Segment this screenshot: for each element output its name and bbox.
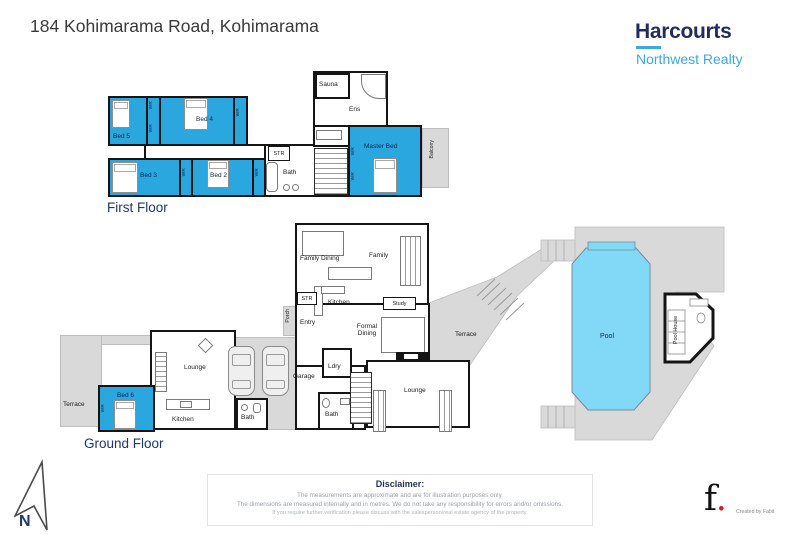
disclaimer-title: Disclaimer: <box>208 479 592 489</box>
fabit-logo: f. Created by Fabit <box>704 482 796 528</box>
formal-dining-table-icon <box>381 317 425 353</box>
pool-step <box>588 242 635 250</box>
formal-dining-label: Formal Dining <box>352 323 382 338</box>
bathtub-icon <box>266 162 278 192</box>
wardrobe-label: WR <box>236 108 242 116</box>
bed4-label: Bed 4 <box>196 116 213 123</box>
wardrobe-label: WR <box>101 404 107 412</box>
dining-table-icon <box>302 231 344 256</box>
sauna-label: Sauna <box>319 81 338 88</box>
storage-label: STR <box>302 296 313 302</box>
porch-label: Porch <box>286 309 292 323</box>
toilet-icon <box>697 313 705 323</box>
toilet-icon <box>253 403 261 413</box>
bed-icon <box>184 98 208 130</box>
shelf-icon <box>155 352 167 392</box>
pool-house-vanity <box>690 299 708 306</box>
family-label: Family <box>369 252 388 259</box>
family-dining-label: Family Dining <box>300 255 339 262</box>
wardrobe-label: WR <box>351 147 357 155</box>
bed5-label: Bed 5 <box>113 133 130 140</box>
basin-icon <box>241 404 248 411</box>
bed3-label: Bed 3 <box>140 172 157 179</box>
wardrobe-label: WR <box>149 101 155 109</box>
bed6-label: Bed 6 <box>117 392 134 399</box>
fabit-logo-f: f <box>704 479 716 519</box>
kitchen-label: Kitchen <box>328 299 350 306</box>
north-label: N <box>19 513 31 530</box>
bed-icon <box>112 100 130 128</box>
kitchen-counter-icon <box>321 286 345 294</box>
sofa-icon <box>328 267 372 280</box>
laundry-label: Ldry <box>328 363 341 370</box>
lounge-right-label: Lounge <box>404 387 426 394</box>
bath-center-label: Bath <box>325 411 338 418</box>
master-bed-label: Master Bed <box>364 143 397 150</box>
floorplan-page: 184 Kohimarama Road, Kohimarama Harcourt… <box>0 0 800 534</box>
fabit-credit-text: Created by Fabit <box>736 509 774 515</box>
car-icon <box>262 346 289 396</box>
stairs-ground-floor <box>350 372 372 424</box>
lounge-left-label: Lounge <box>184 364 206 371</box>
disclaimer-line1: The measurements are approximate and are… <box>208 491 592 500</box>
pool-shape <box>572 248 650 410</box>
first-floor-label: First Floor <box>107 200 168 215</box>
sofa-icon <box>373 390 386 432</box>
sink-icon <box>180 401 192 408</box>
shelf-icon <box>400 236 421 286</box>
north-arrow: N <box>14 458 74 534</box>
bed-icon <box>114 400 136 429</box>
storage-label-box: STR <box>268 146 290 161</box>
wardrobe-label: WR <box>149 124 155 132</box>
deck-steps <box>541 240 575 261</box>
kitchen-left-label: Kitchen <box>172 416 194 423</box>
toilet-icon <box>322 398 330 408</box>
vanity-icon <box>316 130 342 140</box>
ensuite-label: Ens <box>349 106 360 113</box>
study-label: Study <box>392 301 406 307</box>
storage-label: STR <box>274 151 285 157</box>
pool-house-label: Pool House <box>673 316 679 344</box>
entry-label: Entry <box>300 319 315 326</box>
wardrobe-label: WR <box>255 168 261 176</box>
basin-icon <box>292 184 299 191</box>
disclaimer-box: Disclaimer: The measurements are approxi… <box>207 474 593 526</box>
bed2-label: Bed 2 <box>210 172 227 179</box>
disclaimer-line3: If you require further verification plea… <box>208 509 592 517</box>
stairs-first-floor <box>314 148 348 195</box>
study-label-box: Study <box>383 297 416 310</box>
wardrobe-label: WR <box>182 168 188 176</box>
ground-floor-label: Ground Floor <box>84 436 164 451</box>
bath-label: Bath <box>283 169 296 176</box>
balcony-label: Balcony <box>430 140 436 158</box>
deck-steps <box>541 406 575 428</box>
terrace-left-label: Terrace <box>63 401 85 408</box>
basin-icon <box>283 184 290 191</box>
sofa-icon <box>439 390 452 432</box>
basin-icon <box>340 398 350 405</box>
fabit-logo-dot: . <box>716 479 727 519</box>
pool-label: Pool <box>600 333 614 340</box>
bath-left-label: Bath <box>241 414 254 421</box>
terrace-right-label: Terrace <box>455 331 477 338</box>
car-icon <box>228 346 255 396</box>
bed-icon <box>112 162 138 193</box>
storage-label-box: STR <box>297 292 317 305</box>
bed-icon <box>373 158 397 193</box>
fireplace-opening <box>404 354 418 359</box>
wardrobe-label: WR <box>351 172 357 180</box>
garage-label: Garage <box>293 373 315 380</box>
disclaimer-line2: The dimensions are measured internally a… <box>208 500 592 509</box>
